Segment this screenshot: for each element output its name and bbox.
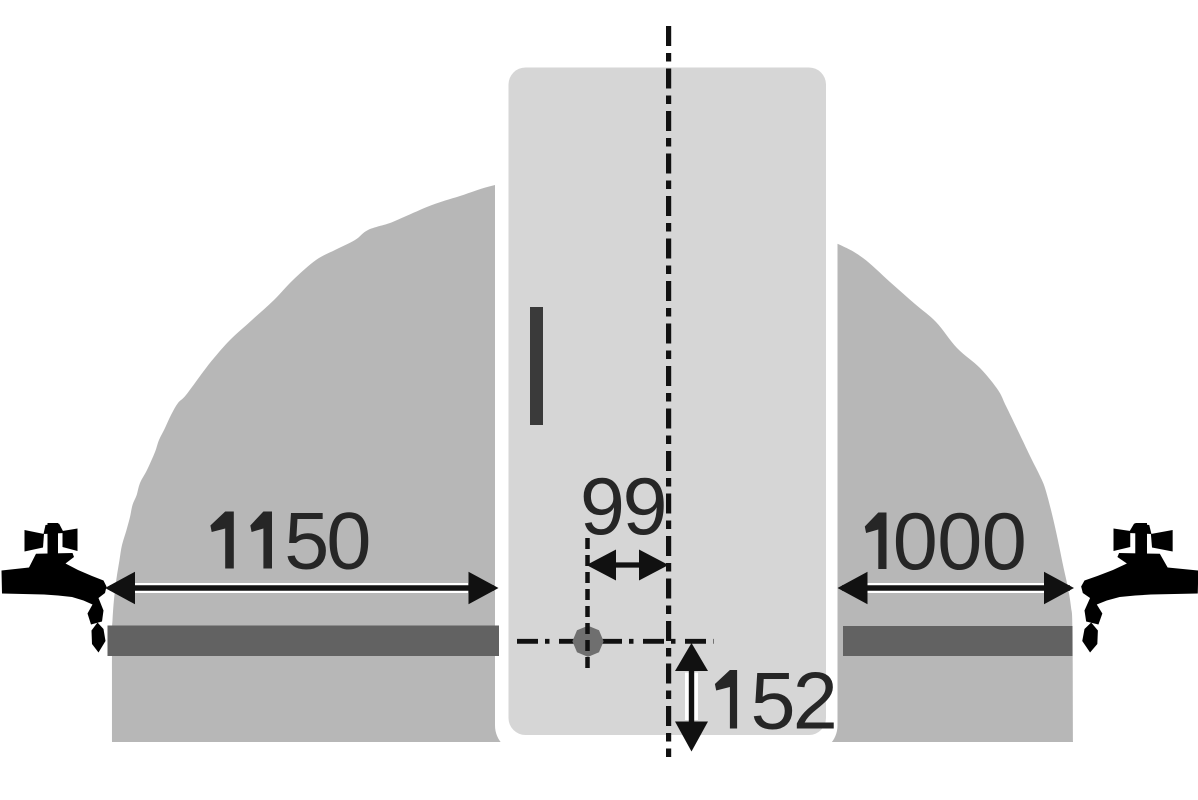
svg-text:000: 000 [893, 497, 1027, 587]
svg-text:52: 52 [751, 657, 836, 747]
svg-text:99: 99 [580, 462, 665, 552]
svg-text:50: 50 [284, 497, 368, 587]
